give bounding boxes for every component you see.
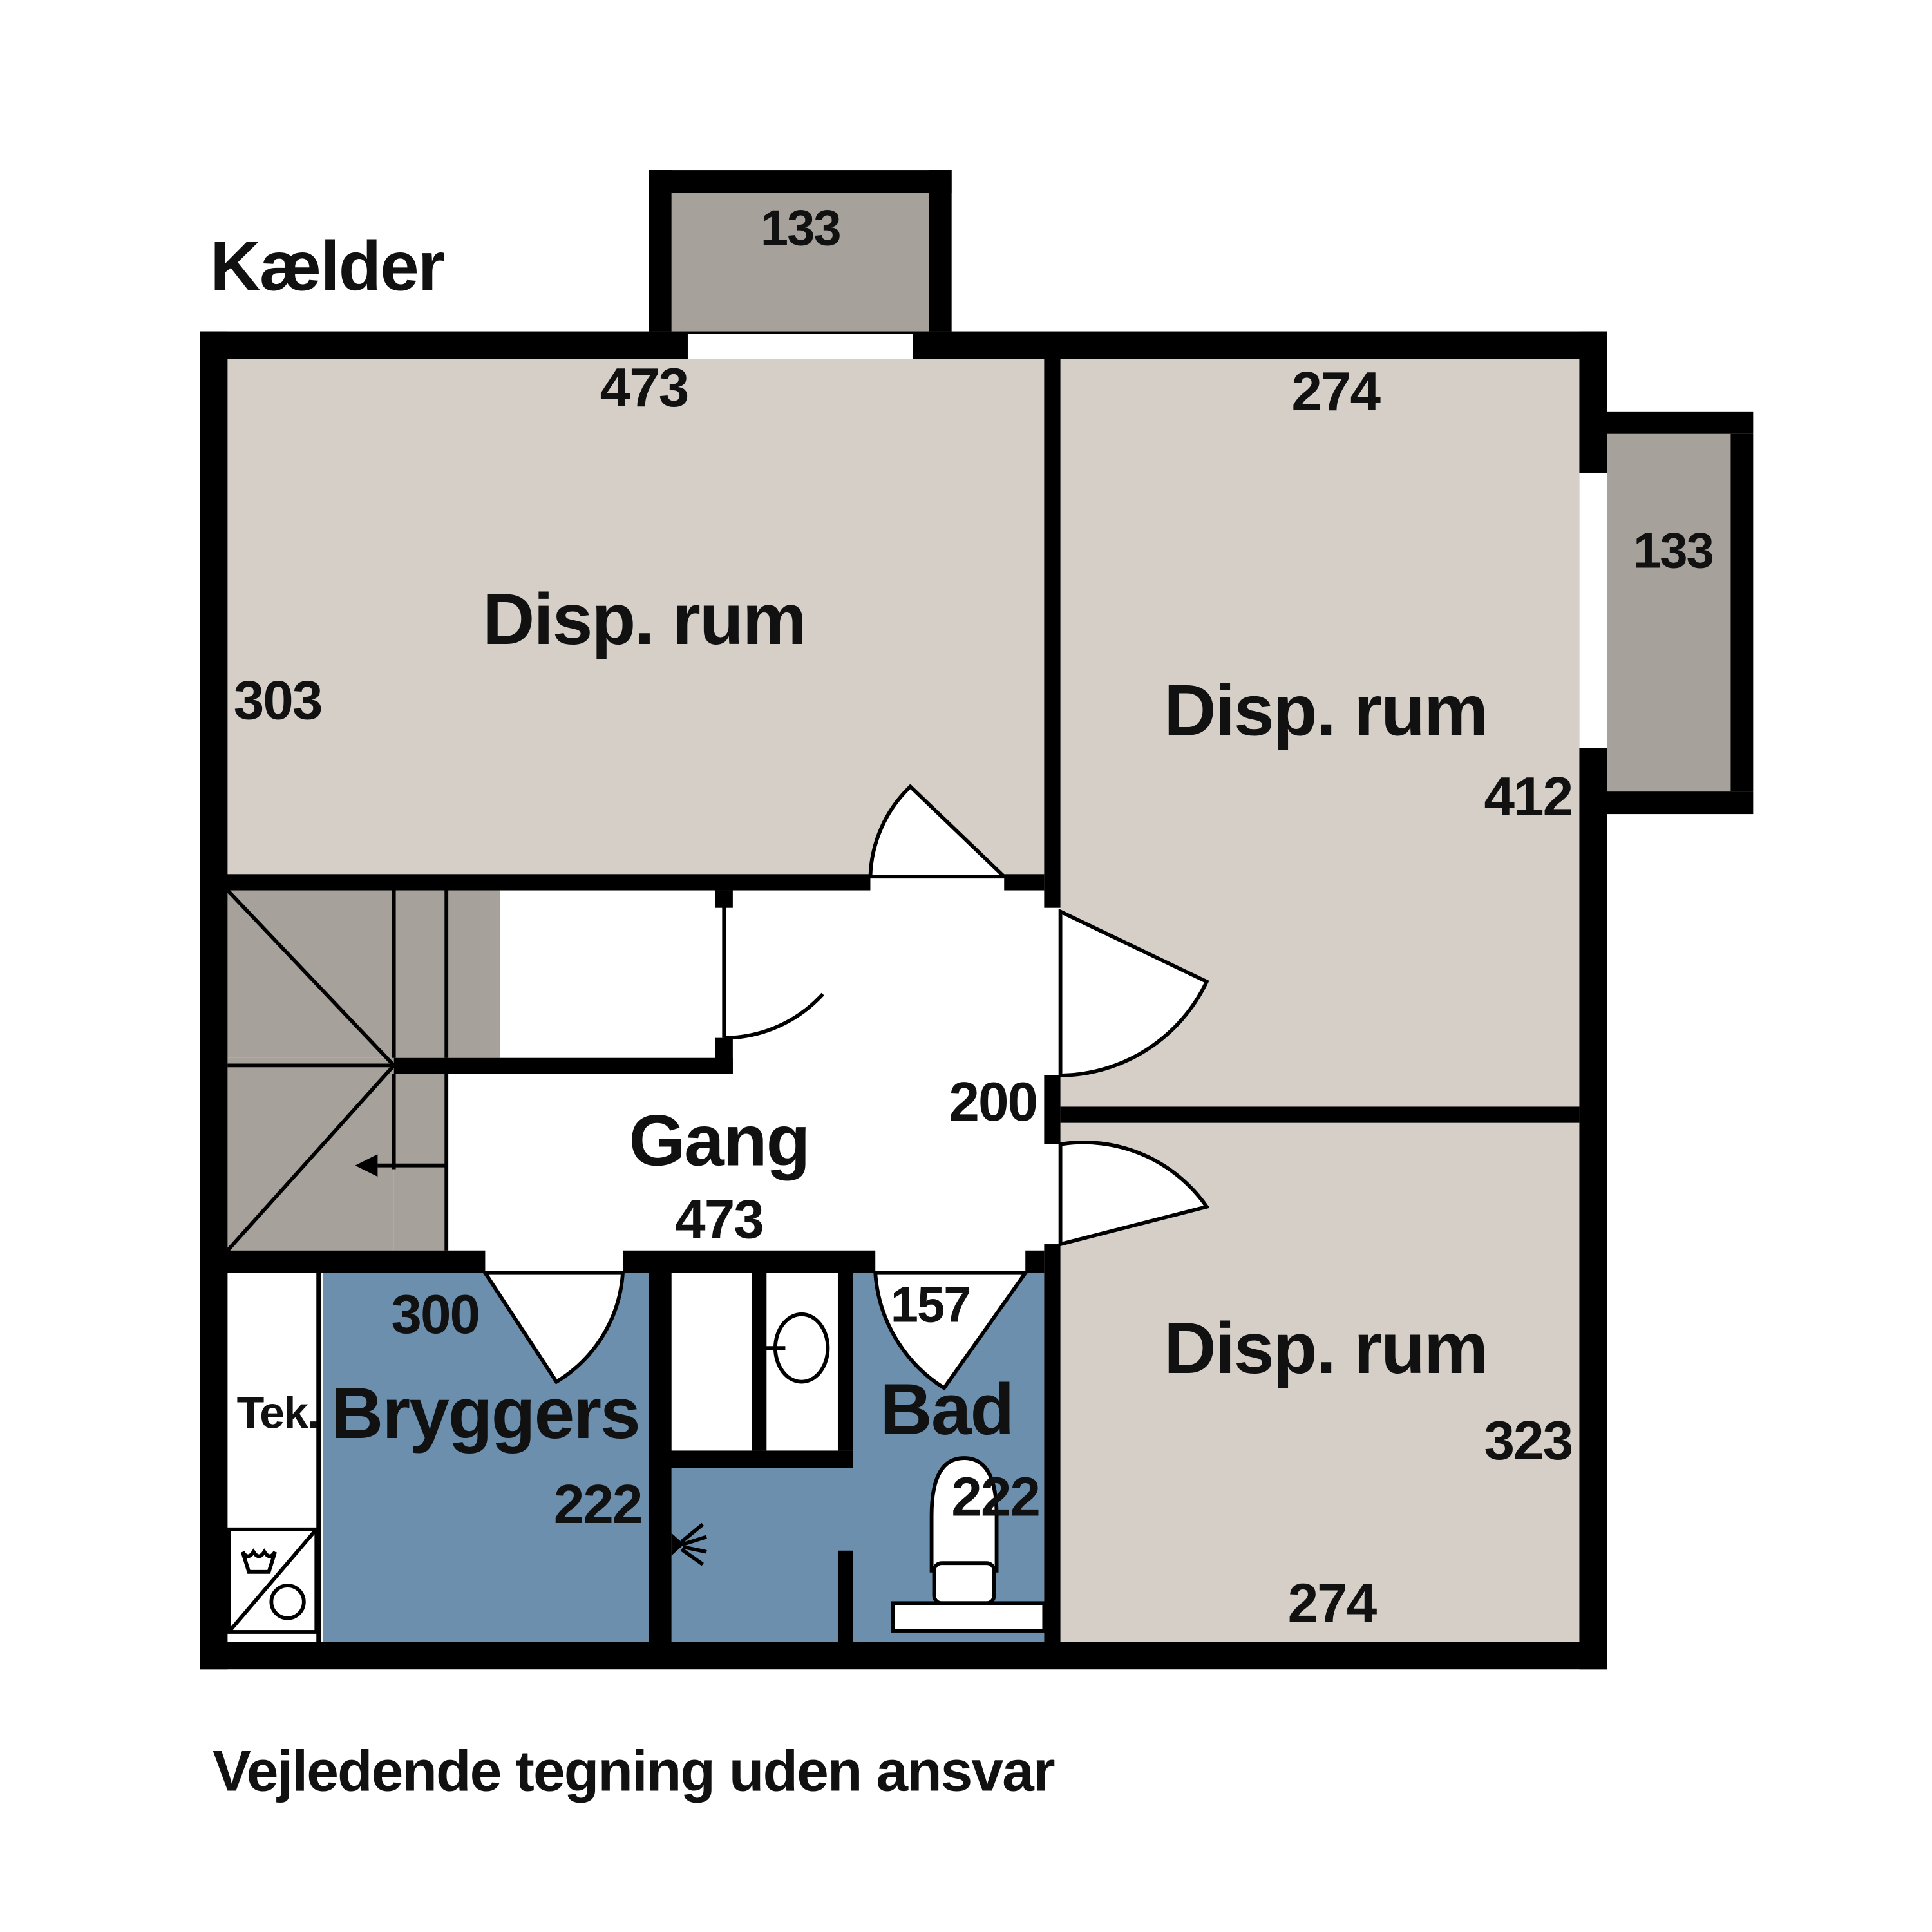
window-well-right-fill (1607, 434, 1730, 791)
label-well-right-dim: 133 (1633, 524, 1713, 579)
wall-center-upper (1044, 359, 1060, 907)
label-bad-width: 157 (891, 1277, 971, 1332)
wall-outer-bottom (200, 1642, 1607, 1670)
label-tl-height: 303 (234, 670, 322, 732)
floorplan-kaelder: Kælder 133 133 473 303 Disp. rum 274 Dis… (0, 0, 1932, 1932)
label-well-top-dim: 133 (761, 201, 840, 256)
wall-center-lower (1044, 1244, 1060, 1642)
wall-alcove-bottom (649, 1450, 853, 1468)
wall-gang-bottom-right (1025, 1251, 1044, 1273)
label-tr-width: 274 (1291, 361, 1381, 422)
wall-well-right-right (1730, 434, 1753, 791)
wall-shower-alcove (752, 1273, 766, 1451)
label-bad-name: Bad (880, 1368, 1013, 1450)
label-br-height: 323 (1484, 1410, 1572, 1472)
wall-center-mid (1044, 1075, 1060, 1144)
door-stair-landing (724, 904, 822, 1038)
label-gang-width: 473 (675, 1189, 763, 1250)
window-top (688, 334, 913, 359)
label-gang-height: 200 (949, 1072, 1037, 1133)
label-br-name: Disp. rum (1164, 1307, 1487, 1388)
wall-outer-left (200, 332, 228, 1670)
wall-well-top-top (649, 170, 952, 193)
sink-icon (765, 1314, 828, 1382)
wall-tl-room-bottom (200, 874, 871, 890)
wall-gang-bottom-left (200, 1251, 486, 1273)
label-tek-name: Tek. (237, 1387, 319, 1437)
wall-gang-bottom-mid (623, 1251, 875, 1273)
label-gang-name: Gang (629, 1100, 809, 1181)
label-tr-name: Disp. rum (1164, 670, 1487, 751)
wall-tl-room-bottom-stub (1004, 874, 1044, 890)
label-tl-width: 473 (600, 357, 688, 419)
label-bryggers-width: 300 (391, 1284, 479, 1345)
label-bad-height: 222 (951, 1466, 1039, 1528)
label-bryggers-name: Bryggers (331, 1372, 639, 1454)
wall-well-right-bottom (1607, 791, 1753, 814)
label-br-width: 274 (1288, 1573, 1378, 1634)
label-tl-name: Disp. rum (482, 578, 806, 659)
label-bryggers-height: 222 (554, 1474, 642, 1535)
wall-between-right-rooms (1061, 1106, 1580, 1122)
wall-stair-stub (394, 1058, 733, 1074)
wall-toilet-stub (838, 1551, 853, 1642)
page-title: Kælder (210, 227, 444, 305)
wall-well-top-left (649, 170, 672, 331)
wall-well-top-right (929, 170, 952, 331)
window-right (1579, 473, 1607, 748)
washing-machine-icon (229, 1529, 316, 1632)
stairs-column-fill (394, 1074, 447, 1251)
wall-well-right-top (1607, 412, 1753, 434)
label-tr-height: 412 (1484, 766, 1572, 828)
disclaimer-text: Vejledende tegning uden ansvar (213, 1739, 1055, 1803)
wall-sink-alcove (838, 1273, 853, 1451)
wall-landing-door-bottom-post (715, 1038, 733, 1074)
